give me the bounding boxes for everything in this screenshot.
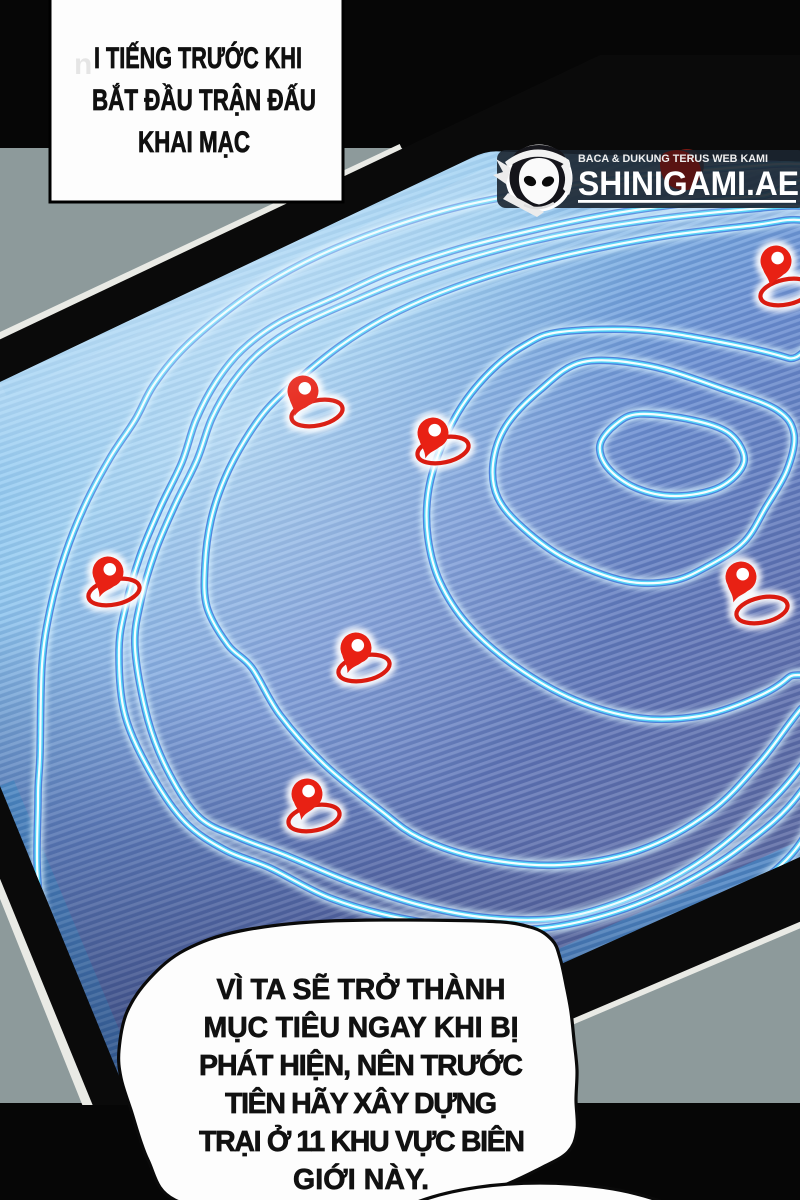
svg-text:BACA & DUKUNG TERUS WEB KAMI: BACA & DUKUNG TERUS WEB KAMI (578, 153, 768, 165)
svg-text:TRẠI Ở 11 KHU VỰC BIÊN: TRẠI Ở 11 KHU VỰC BIÊN (199, 1125, 525, 1158)
svg-text:I TIẾNG TRƯỚC KHI: I TIẾNG TRƯỚC KHI (94, 41, 302, 75)
svg-text:MỤC TIÊU NGAY KHI BỊ: MỤC TIÊU NGAY KHI BỊ (204, 1012, 519, 1044)
svg-text:TIÊN HÃY XÂY DỰNG: TIÊN HÃY XÂY DỰNG (225, 1088, 497, 1120)
svg-text:SHINIGAMI.AE: SHINIGAMI.AE (578, 165, 799, 203)
svg-text:KHAI MẠC: KHAI MẠC (138, 126, 250, 159)
svg-text:GIỚI NÀY.: GIỚI NÀY. (293, 1164, 429, 1196)
svg-text:BẮT ĐẦU TRẬN ĐẤU: BẮT ĐẦU TRẬN ĐẤU (92, 83, 316, 117)
svg-text:PHÁT HIỆN, NÊN TRƯỚC: PHÁT HIỆN, NÊN TRƯỚC (199, 1050, 523, 1082)
svg-text:n: n (74, 48, 92, 81)
svg-text:VÌ TA SẼ TRỞ THÀNH: VÌ TA SẼ TRỞ THÀNH (217, 973, 506, 1006)
